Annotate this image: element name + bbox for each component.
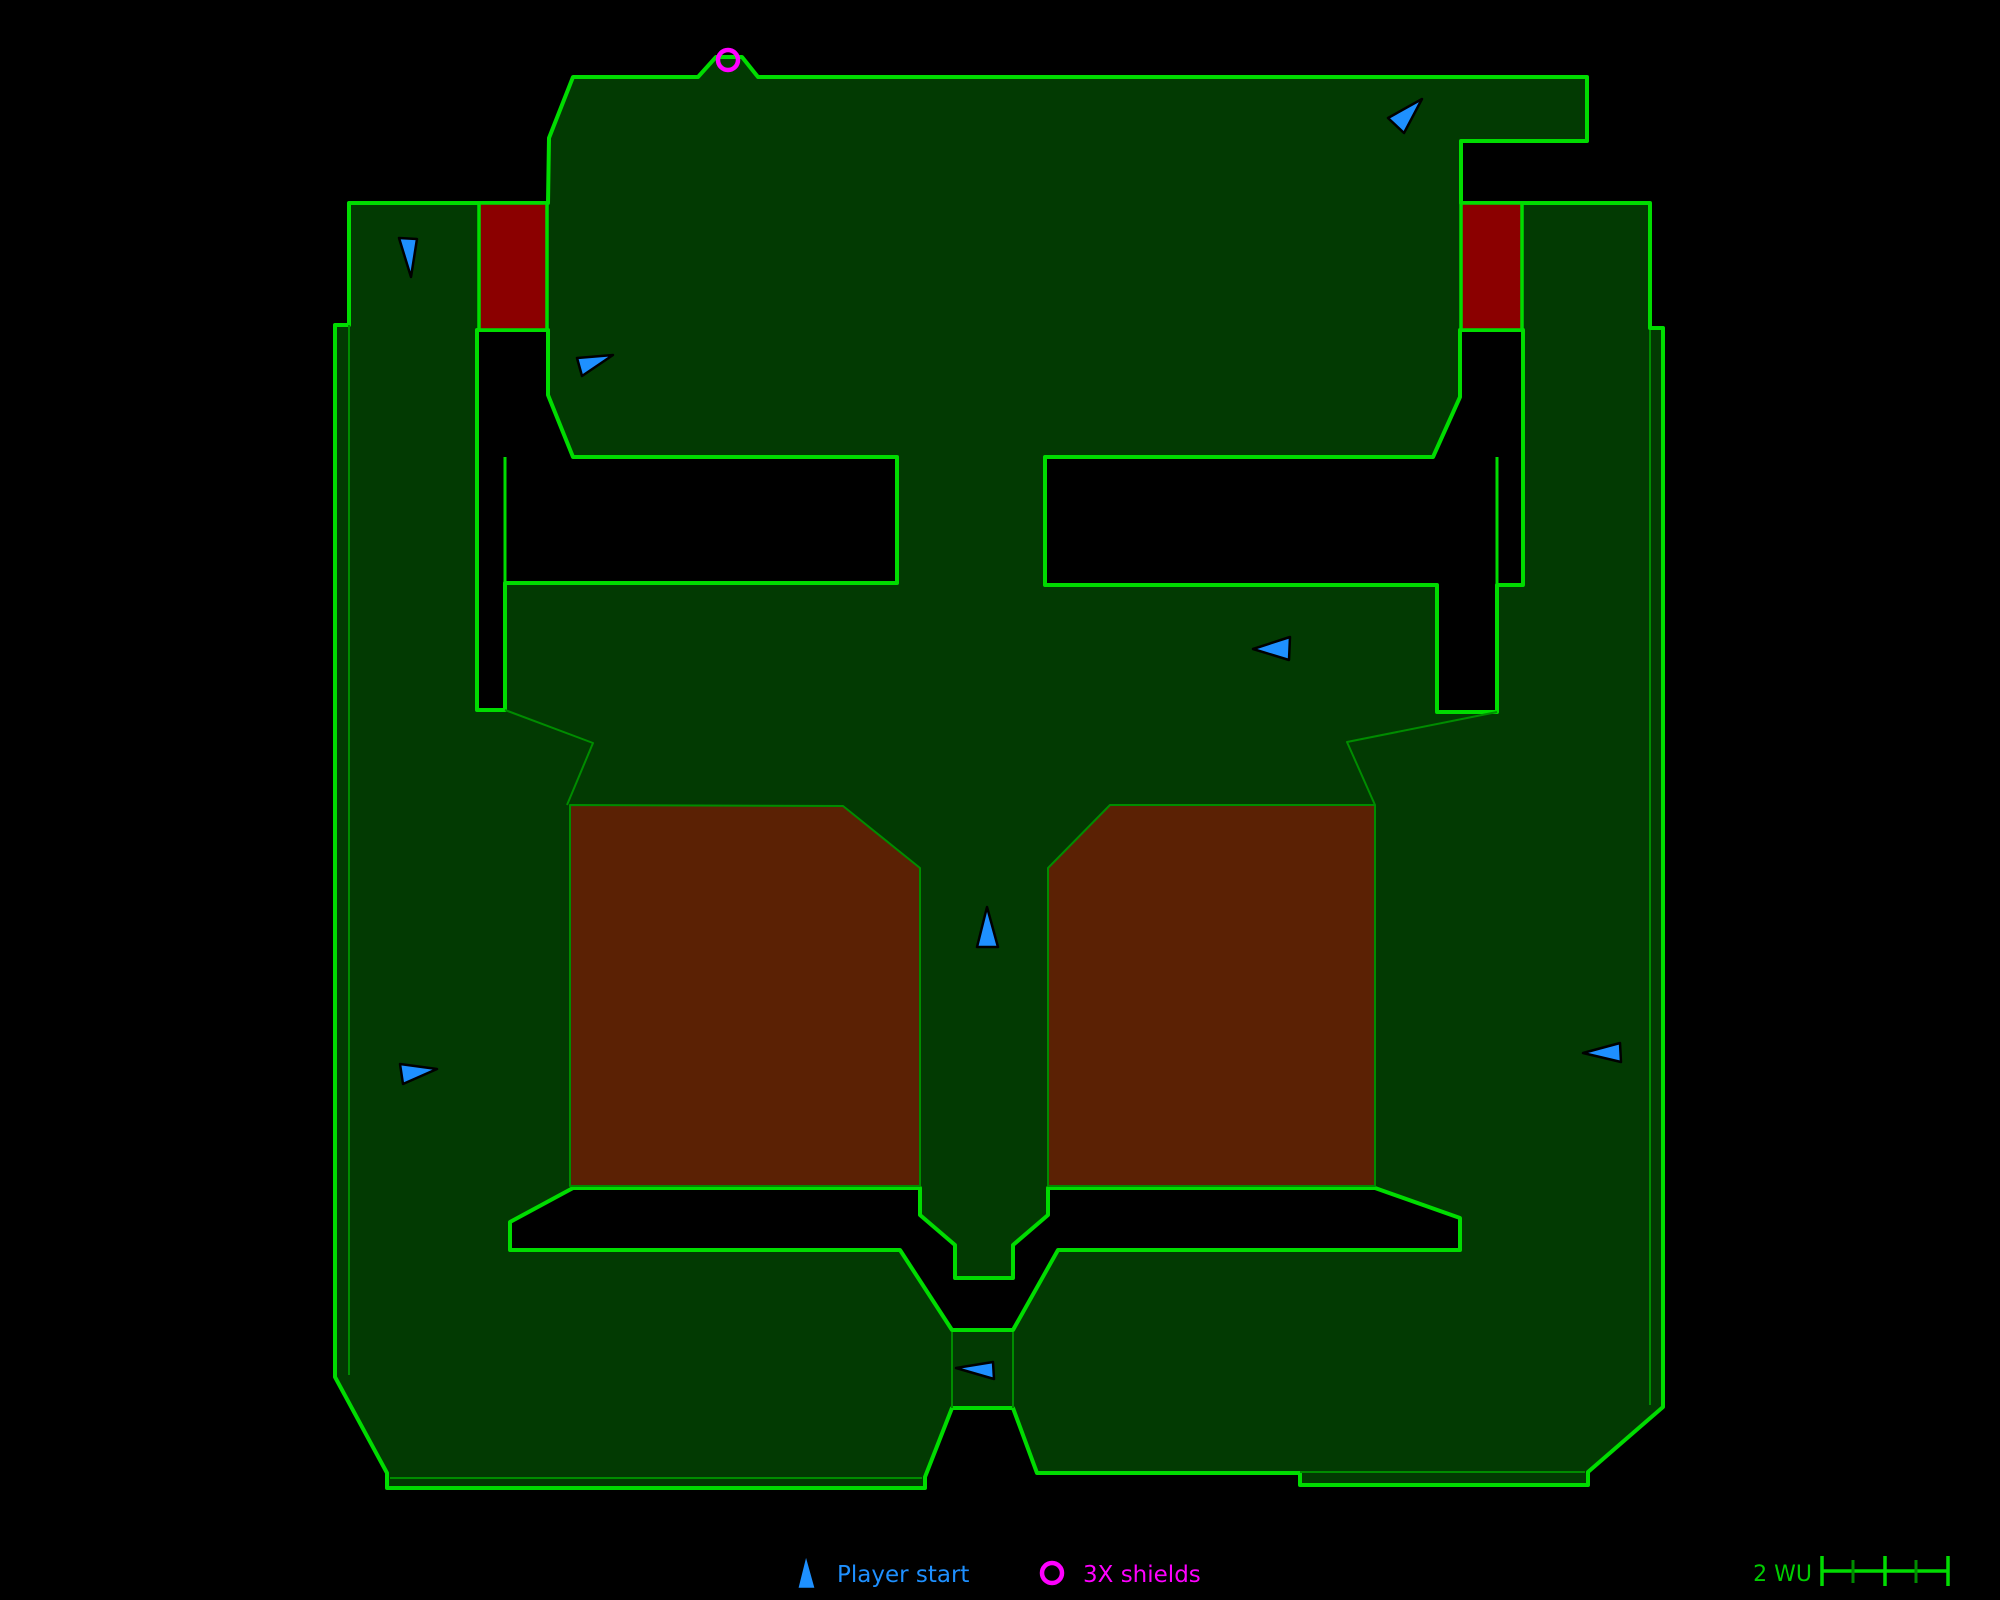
- legend: Player start 3X shields: [797, 1553, 1201, 1589]
- red-door-left: [479, 203, 547, 330]
- platform-right: [1048, 805, 1375, 1186]
- platform-left: [570, 805, 920, 1186]
- legend-player-start-icon: [797, 1553, 816, 1589]
- map-viewer: Player start 3X shields 2 WU: [0, 0, 2000, 1600]
- scale-bar-label: 2 WU: [1753, 1562, 1812, 1587]
- legend-shields-label: 3X shields: [1083, 1562, 1201, 1588]
- scale-bar: 2 WU: [1753, 1556, 1948, 1587]
- level-map-canvas: Player start 3X shields 2 WU: [0, 0, 2000, 1600]
- red-door-right: [1461, 203, 1522, 330]
- legend-shields-icon: [1042, 1563, 1062, 1583]
- legend-player-start-label: Player start: [837, 1562, 969, 1588]
